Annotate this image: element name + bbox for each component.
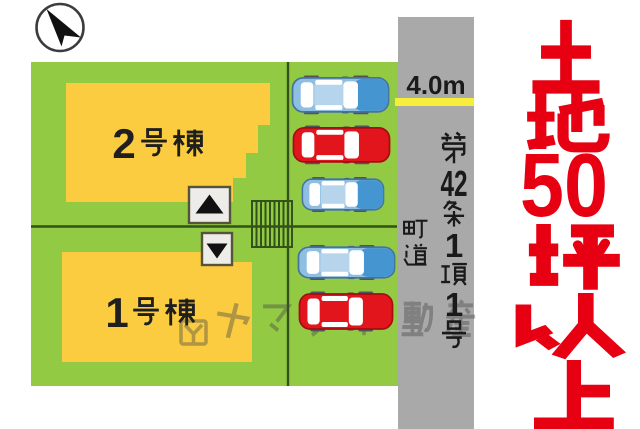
svg-text:42: 42 (441, 163, 468, 204)
svg-text:4.0m: 4.0m (406, 70, 465, 100)
svg-text:1: 1 (105, 289, 128, 336)
svg-text:1: 1 (445, 286, 463, 323)
svg-text:1: 1 (445, 227, 463, 264)
svg-text:2: 2 (112, 120, 135, 167)
svg-text:50: 50 (520, 136, 608, 236)
